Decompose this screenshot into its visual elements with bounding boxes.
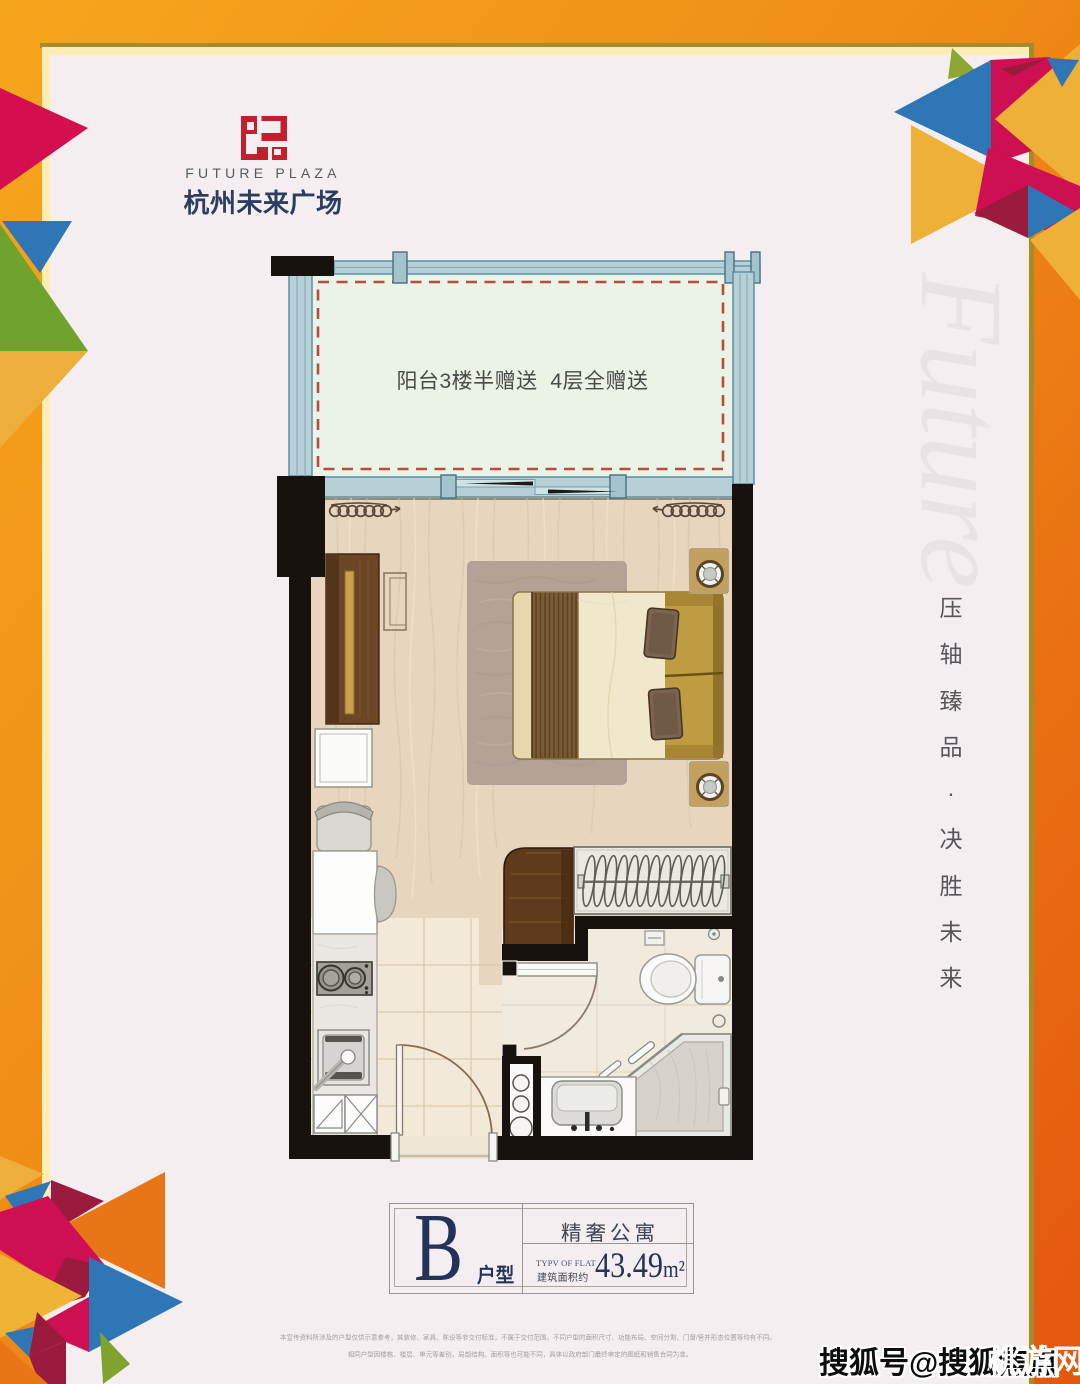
svg-text:Future: Future <box>896 271 1027 589</box>
